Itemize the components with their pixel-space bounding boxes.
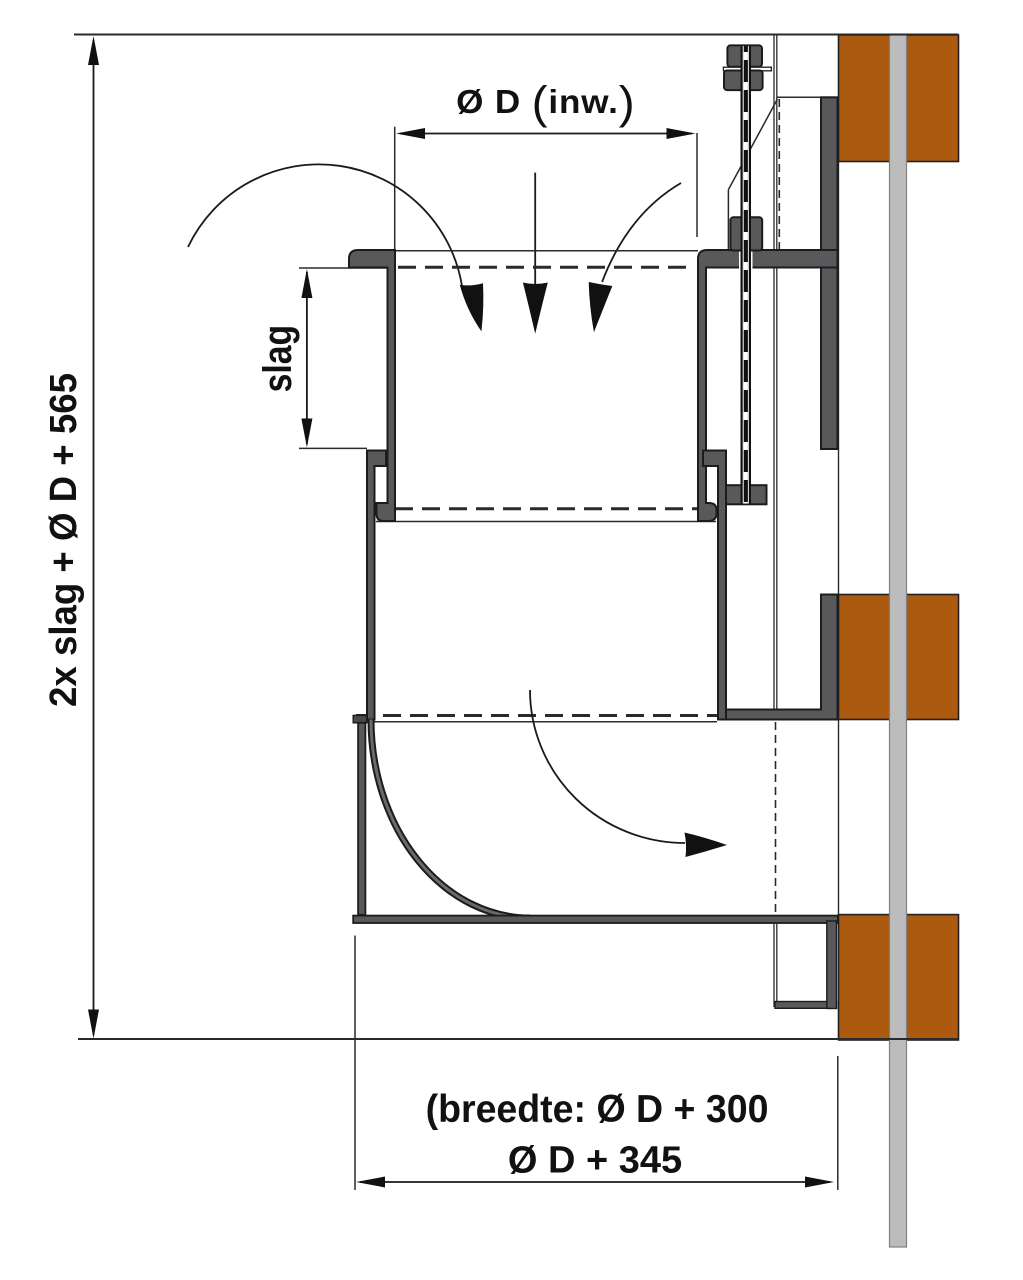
svg-text:Ø D (inw.): Ø D (inw.)	[456, 77, 635, 127]
svg-text:2x slag + Ø D + 565: 2x slag + Ø D + 565	[41, 373, 84, 707]
svg-text:Ø D + 345: Ø D + 345	[508, 1139, 682, 1181]
svg-text:(breedte: Ø D + 300: (breedte: Ø D + 300	[426, 1088, 769, 1132]
svg-text:slag: slag	[256, 325, 300, 392]
